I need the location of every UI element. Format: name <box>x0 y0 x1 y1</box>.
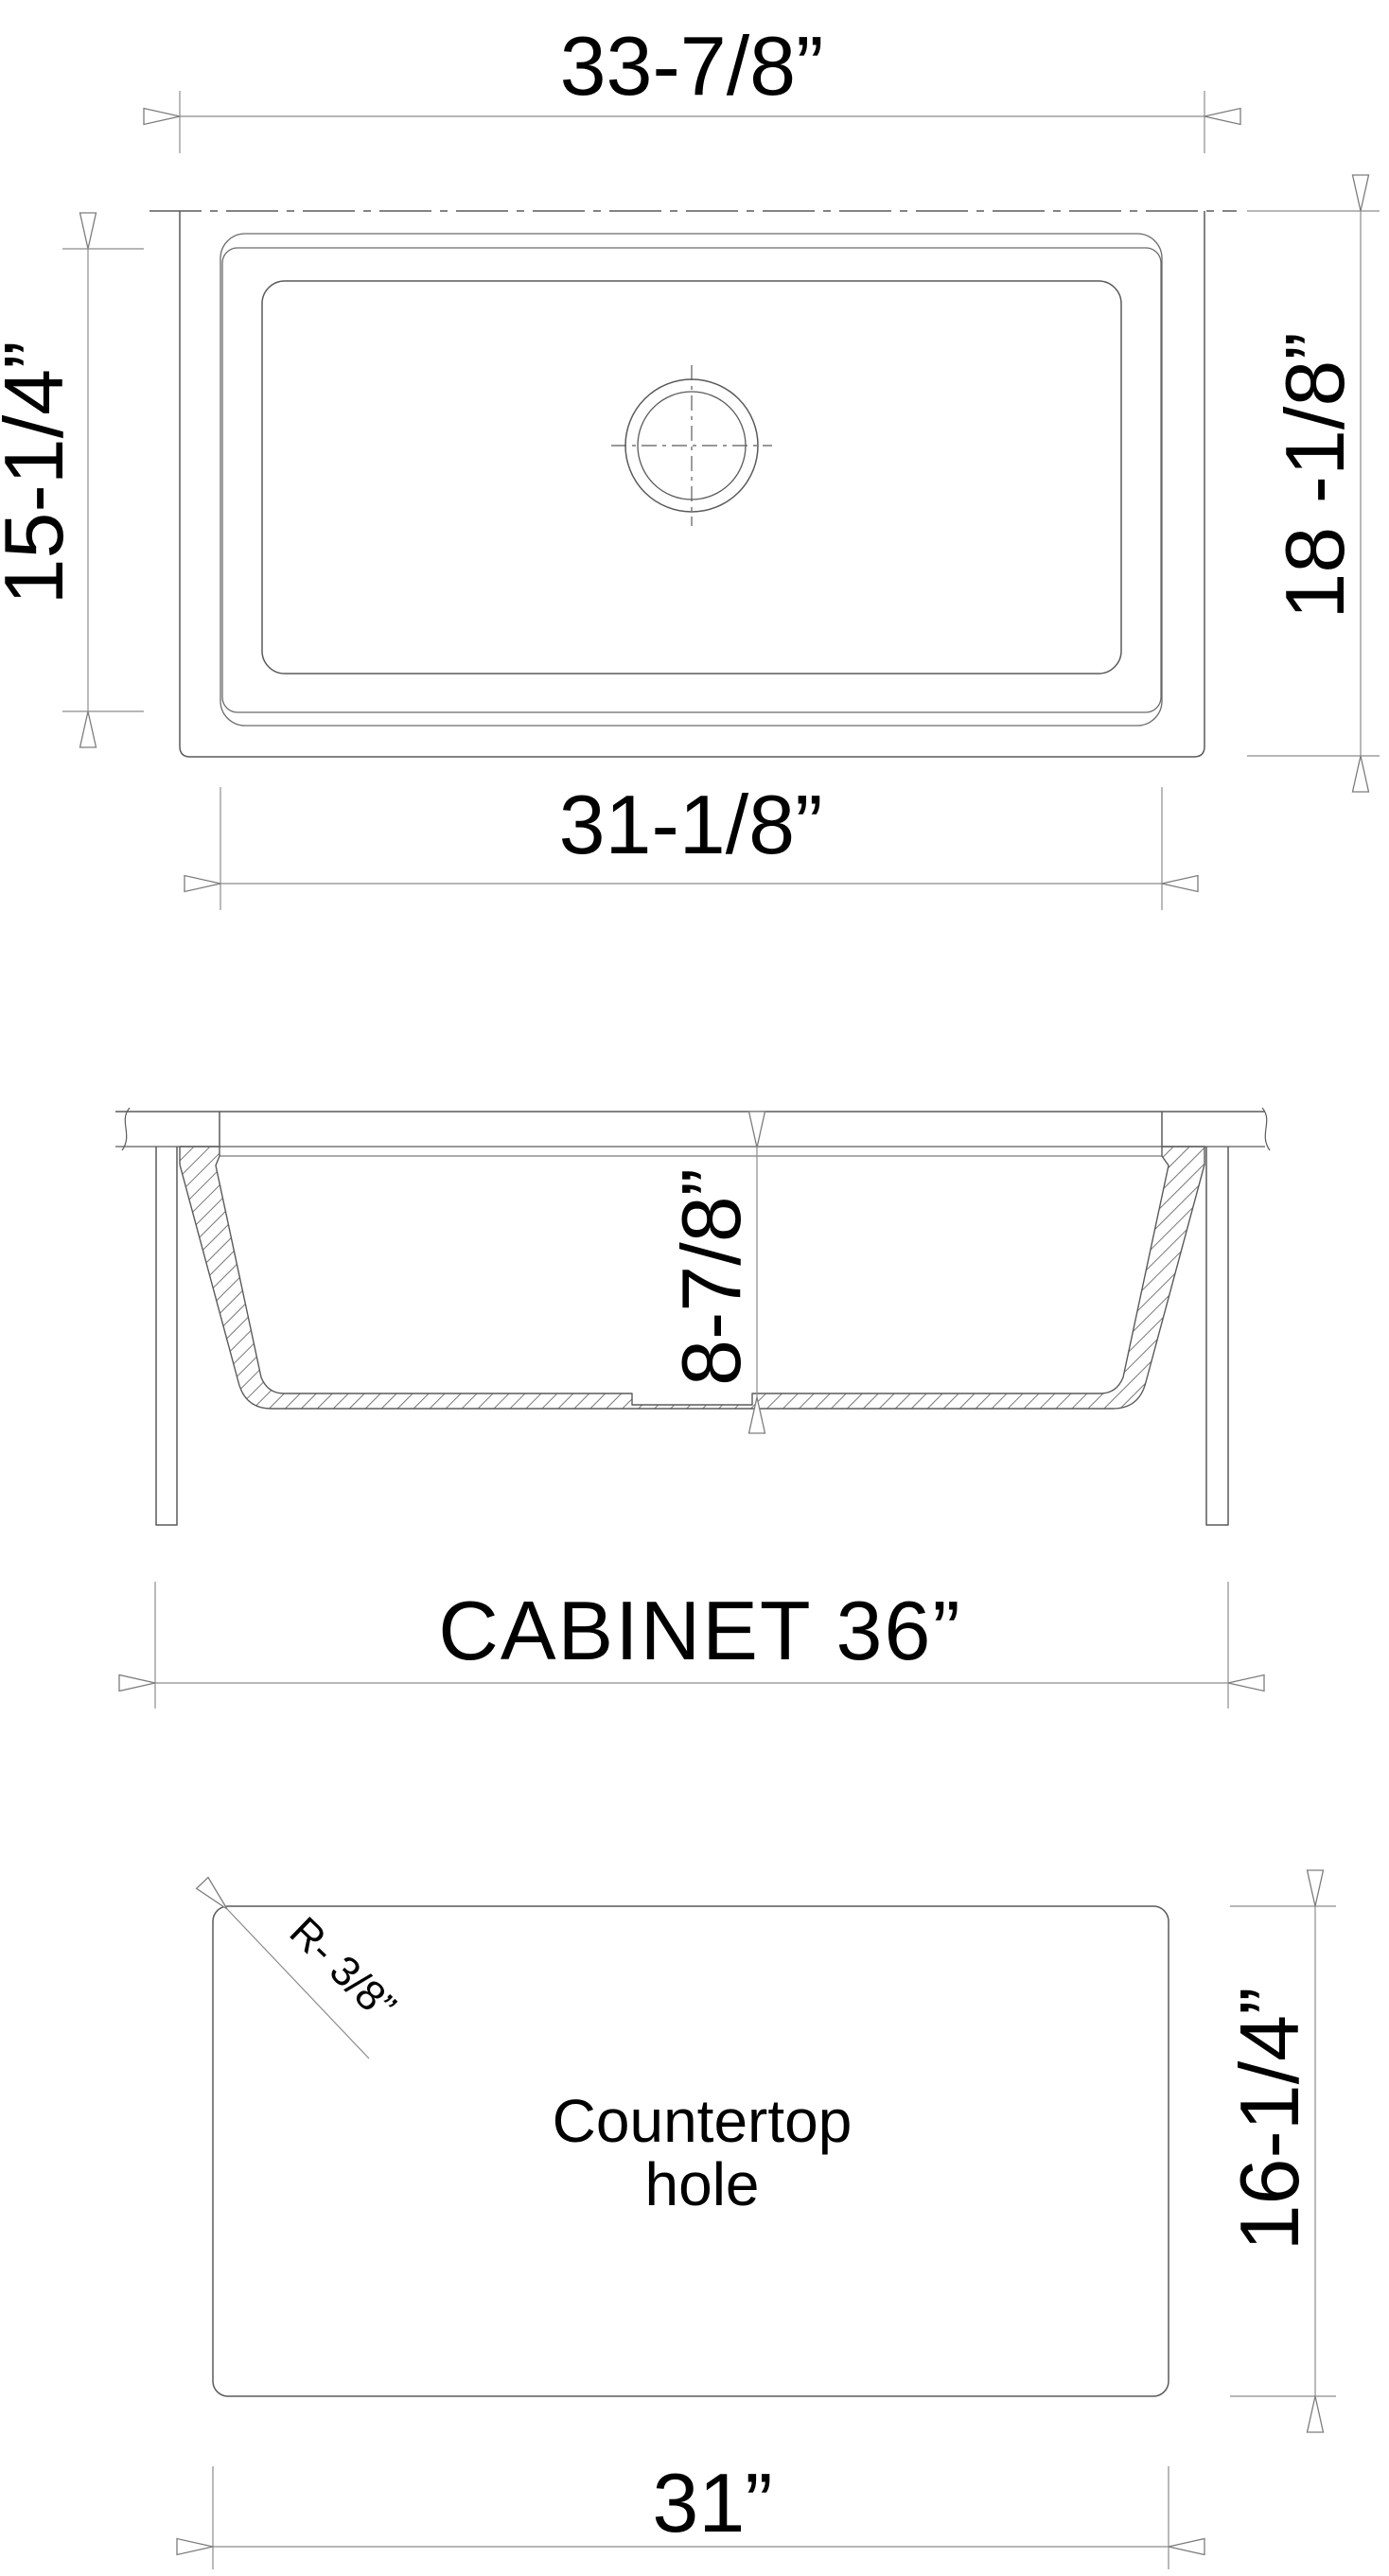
top-view-outline <box>149 211 1237 757</box>
cabinet-wall-left <box>156 1147 177 1525</box>
countertop-hole-label-line1: Countertop <box>553 2087 853 2155</box>
countertop-hole-label-line2: hole <box>645 2150 760 2218</box>
overall-depth-label: 18 -1/8” <box>1268 332 1362 619</box>
countertop-break-right <box>1262 1108 1270 1150</box>
cabinet-wall-right <box>1206 1147 1228 1525</box>
drawing-canvas: 33-7/8” 15-1/4” 18 -1/8” 31-1/8” 8-7/8” … <box>0 0 1389 2576</box>
corner-radius-label: R- 3/8” <box>281 1908 405 2030</box>
sink-spec-drawing: 33-7/8” 15-1/4” 18 -1/8” 31-1/8” 8-7/8” … <box>0 0 1389 2576</box>
bowl-length-label: 15-1/4” <box>0 342 80 605</box>
bowl-width-label: 31-1/8” <box>559 778 823 871</box>
bowl-depth-label: 8-7/8” <box>664 1168 758 1386</box>
overall-width-label: 33-7/8” <box>560 19 824 113</box>
cabinet-size-label: CABINET 36” <box>438 1584 961 1677</box>
sink-outer-rim <box>180 211 1204 757</box>
countertop-break-left <box>122 1108 130 1150</box>
cutout-depth-label: 16-1/4” <box>1222 1988 1316 2252</box>
cutout-width-label: 31” <box>652 2456 772 2550</box>
